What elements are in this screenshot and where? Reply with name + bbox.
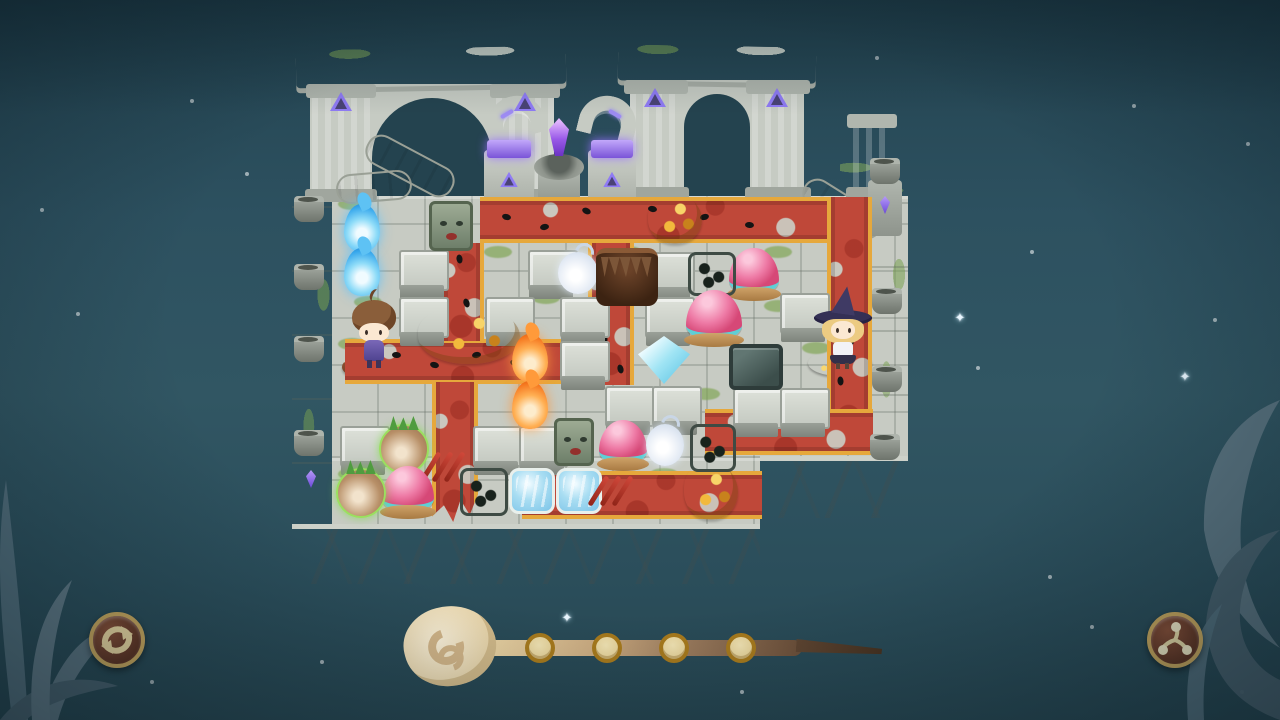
restart-arrows-icon [99,622,135,658]
wand-slot-empty [592,633,622,663]
wand-slot-empty [659,633,689,663]
wand-spiral-icon [422,623,470,671]
triskelion-icon [1157,622,1193,658]
wand-head [396,596,505,696]
hud [0,0,1280,720]
spin-button[interactable] [1147,612,1203,668]
restart-button[interactable] [89,612,145,668]
wand-slot-empty [525,633,555,663]
game-scene: ✦✦✦✦✦ [0,0,1280,720]
wand-slot-empty [726,633,756,663]
wand-tip [796,639,883,658]
